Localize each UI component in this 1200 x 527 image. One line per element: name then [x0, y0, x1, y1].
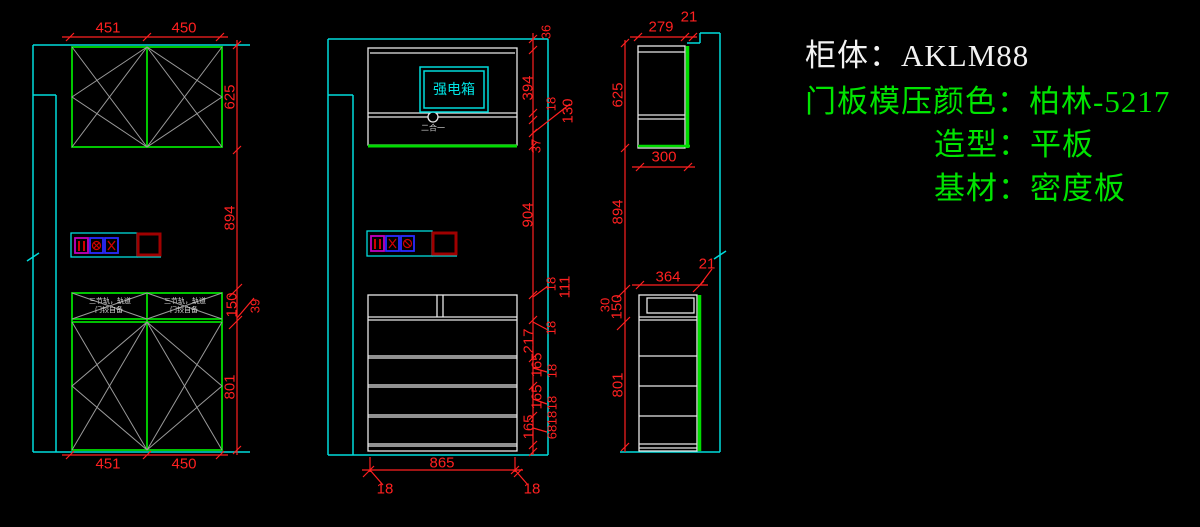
dim-label: 894 — [223, 205, 238, 230]
note-door-color: 门板模压颜色：柏林-5217 — [805, 76, 1170, 121]
drawer-note: 三节轨，轨道 — [164, 298, 206, 306]
dim-label: 165 — [530, 384, 545, 409]
dim-label: 18 — [546, 396, 559, 410]
note-shape: 造型：平板 — [934, 119, 1094, 164]
dim-label: 904 — [521, 202, 536, 227]
left-view-upper-cabinet — [72, 47, 222, 147]
dim-label: 801 — [611, 372, 626, 397]
middle-view-wall-lines — [328, 39, 548, 455]
dim-label: 18 — [545, 321, 558, 335]
dim-label: 279 — [648, 20, 673, 35]
middle-view-socket-strip — [367, 231, 457, 256]
dim-label: 364 — [655, 270, 680, 285]
two-in-one-label: 二合一 — [421, 123, 445, 134]
dim-label: 39 — [249, 299, 262, 313]
dim-label: 165 — [522, 414, 537, 439]
dim-label: 625 — [223, 84, 238, 109]
cad-drawing-canvas[interactable]: 451 450 625 894 150 39 801 451 450 三节轨，轨… — [0, 0, 1200, 527]
dim-label: 18 — [524, 482, 541, 497]
dim-label: 18 — [545, 97, 558, 111]
dim-label: 625 — [611, 82, 626, 107]
dim-label: 18 — [546, 364, 559, 378]
dim-label: 451 — [95, 21, 120, 36]
dim-label: 451 — [95, 457, 120, 472]
note-cabinet-model: 柜体：AKLM88 — [805, 30, 1029, 75]
left-view-socket-strip — [71, 233, 161, 257]
dim-label: 37 — [530, 139, 543, 153]
double-bar-socket-icon — [371, 236, 384, 251]
left-view-lower-cabinet — [72, 293, 222, 450]
dim-label: 865 — [429, 456, 454, 471]
dim-label: 18 — [377, 482, 394, 497]
dim-label: 450 — [171, 457, 196, 472]
dim-label: 394 — [521, 75, 536, 100]
dim-label: 150 — [225, 292, 240, 317]
dim-label: 68 — [546, 425, 559, 439]
dim-label: 21 — [699, 257, 716, 272]
dim-label: 36 — [540, 25, 553, 39]
junction-box-square-icon — [138, 234, 160, 255]
electric-box-label: 强电箱 — [433, 79, 475, 99]
right-view-wall-lines — [620, 33, 726, 452]
dim-label: 217 — [522, 328, 537, 353]
right-view-drawer-unit — [639, 295, 700, 451]
dim-label: 111 — [558, 276, 573, 299]
dim-label: 150 — [610, 294, 625, 319]
middle-view-drawer-unit — [368, 295, 517, 451]
dim-label: 300 — [651, 150, 676, 165]
dim-label: 801 — [223, 374, 238, 399]
drawer-note: 门铰自备 — [170, 307, 198, 315]
dim-label: 450 — [171, 21, 196, 36]
junction-box-square-icon — [433, 233, 456, 254]
dim-label: 130 — [561, 98, 576, 123]
dim-label: 21 — [681, 10, 698, 25]
dim-label: 894 — [611, 199, 626, 224]
drawer-note: 门铰自备 — [95, 307, 123, 315]
right-view-upper-cabinet — [638, 46, 690, 148]
drawer-note: 三节轨，轨道 — [89, 298, 131, 306]
double-bar-socket-icon — [75, 238, 88, 253]
note-base-material: 基材：密度板 — [934, 163, 1126, 208]
dim-label: 165 — [530, 352, 545, 377]
dim-label: 18 — [546, 411, 559, 425]
